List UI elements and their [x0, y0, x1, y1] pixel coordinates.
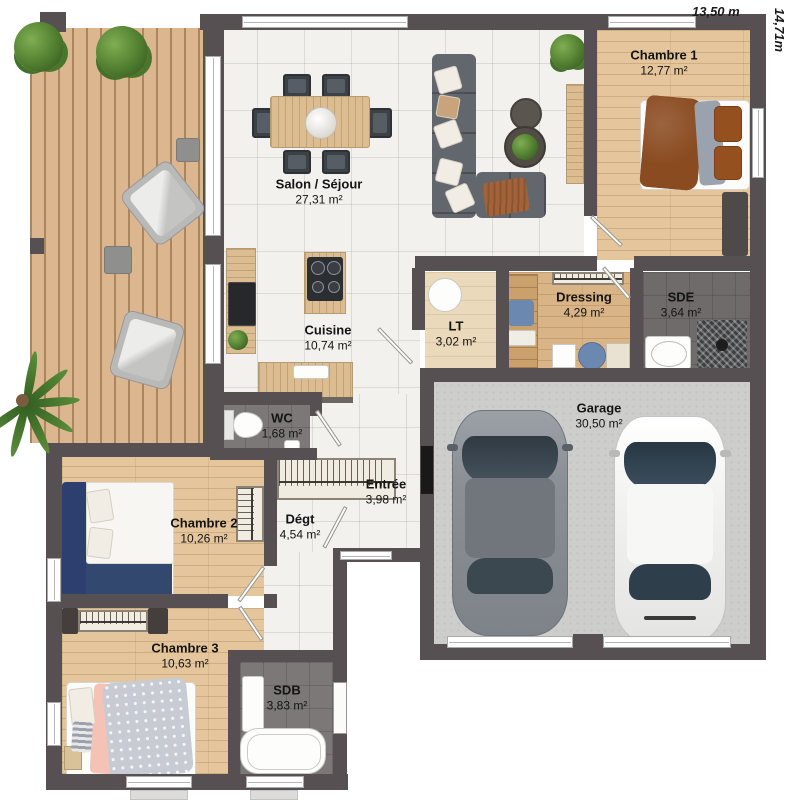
shower-drain-oval [651, 341, 687, 367]
chambre2-pillow [86, 527, 113, 560]
label-entree: Entrée 3,98 m² [366, 477, 407, 508]
label-garage: Garage 30,50 m² [575, 401, 622, 432]
terrace-side-table [104, 246, 132, 274]
dining-chair [322, 74, 350, 98]
room-area: 3,02 m² [436, 335, 477, 349]
bush [96, 26, 148, 78]
label-cuisine: Cuisine 10,74 m² [304, 323, 351, 354]
room-name: SDE [661, 290, 702, 306]
window-salon-north [242, 16, 408, 28]
label-salon: Salon / Séjour 27,31 m² [276, 177, 363, 208]
room-name: Garage [575, 401, 622, 417]
dressing-blue-bin [508, 300, 534, 326]
garage-door-right [603, 636, 731, 648]
window-step [250, 790, 298, 800]
chambre2-headboard [62, 482, 86, 600]
room-name: LT [436, 319, 477, 335]
sideboard [566, 84, 584, 184]
palm-trunk [16, 394, 29, 407]
room-area: 10,74 m² [304, 339, 351, 353]
room-name: Entrée [366, 477, 407, 493]
chambre1-pillow [714, 106, 742, 142]
room-name: Dégt [280, 512, 321, 528]
water-heater [428, 278, 462, 312]
wall-corridor-east [333, 548, 347, 790]
car-gray [452, 410, 568, 636]
room-name: Chambre 3 [151, 641, 218, 657]
label-wc: WC 1,68 m² [262, 411, 303, 442]
cooktop-burner [311, 261, 325, 275]
dressing-drawer [508, 330, 536, 346]
wall-dressing-sde [630, 268, 643, 370]
chambre1-bench [722, 192, 748, 256]
room-area: 30,50 m² [575, 417, 622, 431]
car-gray-roof [465, 478, 555, 558]
wall-garage-west [420, 368, 434, 660]
room-name: SDB [267, 683, 308, 699]
cooktop-burner [327, 261, 341, 275]
car-white-roof [627, 484, 713, 564]
car-white [614, 416, 726, 644]
sofa-throw-blanket [482, 177, 531, 217]
dining-chair [283, 74, 311, 98]
room-area: 4,54 m² [280, 528, 321, 542]
dressing-unit [606, 343, 630, 370]
chambre3-closet-block [62, 608, 78, 634]
dining-chair [368, 108, 392, 138]
label-sde: SDE 3,64 m² [661, 290, 702, 321]
wall-lt-dressing [496, 268, 509, 370]
chambre2-wardrobe [236, 486, 264, 542]
room-area: 12,77 m² [630, 64, 697, 78]
wall-stub [264, 594, 277, 608]
room-name: Dressing [556, 290, 612, 306]
bay-window-salon-terrace [205, 56, 221, 236]
room-name: Salon / Séjour [276, 177, 363, 193]
window-chambre3-south [126, 776, 192, 788]
room-name: Chambre 1 [630, 48, 697, 64]
chambre3-closet-block [148, 608, 168, 634]
room-area: 3,83 m² [267, 699, 308, 713]
chambre2-pillow [86, 488, 115, 523]
car-mirror [562, 444, 573, 451]
label-chambre2: Chambre 2 10,26 m² [170, 516, 237, 547]
table-centerpiece [305, 107, 337, 139]
floor-plan: Chambre 1 12,77 m² Salon / Séjour 27,31 … [0, 0, 800, 800]
wall-garage-north [420, 368, 766, 382]
wall-lt-west [412, 268, 425, 330]
garage-door-post [573, 634, 603, 660]
label-chambre1: Chambre 1 12,77 m² [630, 48, 697, 79]
wall-chambre2-3 [46, 594, 228, 608]
car-white-windshield [624, 442, 716, 488]
cooktop-burner [312, 281, 324, 293]
label-lt: LT 3,02 m² [436, 319, 477, 350]
wall-sdb-north [228, 650, 333, 662]
chambre3-dotted-duvet [102, 677, 194, 780]
terrace-pillar-west [30, 238, 44, 254]
car-white-bumper [644, 616, 696, 620]
label-dressing: Dressing 4,29 m² [556, 290, 612, 321]
entry-door-gap [340, 551, 392, 560]
room-area: 27,31 m² [276, 193, 363, 207]
coffee-table-plant [512, 134, 538, 160]
car-mirror [609, 450, 620, 457]
room-area: 4,29 m² [556, 306, 612, 320]
sdb-bathtub-inner [247, 734, 321, 770]
dining-chair [283, 150, 311, 174]
car-gray-windshield [462, 436, 558, 482]
room-area: 3,98 m² [366, 493, 407, 507]
window-step [130, 790, 188, 800]
room-area: 10,63 m² [151, 657, 218, 671]
wall-chambre2-north [46, 443, 224, 457]
chambre1-pillow [714, 146, 742, 180]
wall-wc-north [210, 392, 317, 405]
room-area: 1,68 m² [262, 427, 303, 441]
dressing-basket [578, 342, 606, 370]
room-area: 10,26 m² [170, 532, 237, 546]
car-mirror [720, 450, 731, 457]
window-chambre3-west [47, 702, 61, 746]
label-degt: Dégt 4,54 m² [280, 512, 321, 543]
bush [14, 22, 64, 72]
wall-chambre2-east [264, 448, 277, 566]
window-chambre1-north [608, 16, 696, 28]
room-name: Cuisine [304, 323, 351, 339]
car-white-rear-window [629, 564, 711, 600]
kitchen-sink [293, 365, 329, 379]
kitchen-plant [228, 330, 248, 350]
garage-door-left [447, 636, 573, 648]
wall-mid-b [634, 256, 766, 271]
dimension-width: 13,50 m [692, 4, 740, 19]
dimension-height: 14,71m [772, 8, 787, 52]
cooktop-burner [328, 281, 340, 293]
room-area: 3,64 m² [661, 306, 702, 320]
terrace-side-table [176, 138, 200, 162]
room-name: WC [262, 411, 303, 427]
door-panel-sdb [333, 682, 347, 734]
sofa-pillow [435, 94, 460, 119]
window-chambre1-east [752, 108, 764, 178]
car-gray-rear-window [467, 558, 553, 594]
dressing-unit [552, 344, 576, 368]
chambre3-striped-pillow [71, 721, 93, 752]
label-chambre3: Chambre 3 10,63 m² [151, 641, 218, 672]
shower-column [716, 339, 728, 351]
window-chambre2-west [47, 558, 61, 602]
sdb-vanity [242, 676, 264, 732]
car-mirror [447, 444, 458, 451]
room-name: Chambre 2 [170, 516, 237, 532]
garage-service-door [421, 446, 433, 494]
dining-chair [322, 150, 350, 174]
label-sdb: SDB 3,83 m² [267, 683, 308, 714]
window-cuisine-west [205, 264, 221, 364]
kitchen-oven [228, 282, 256, 326]
salon-plant [550, 34, 586, 70]
wall-sdb-west [228, 650, 240, 790]
chambre3-closet [78, 610, 148, 632]
wall-salon-chambre1 [584, 14, 597, 216]
window-sdb-south [246, 776, 304, 788]
